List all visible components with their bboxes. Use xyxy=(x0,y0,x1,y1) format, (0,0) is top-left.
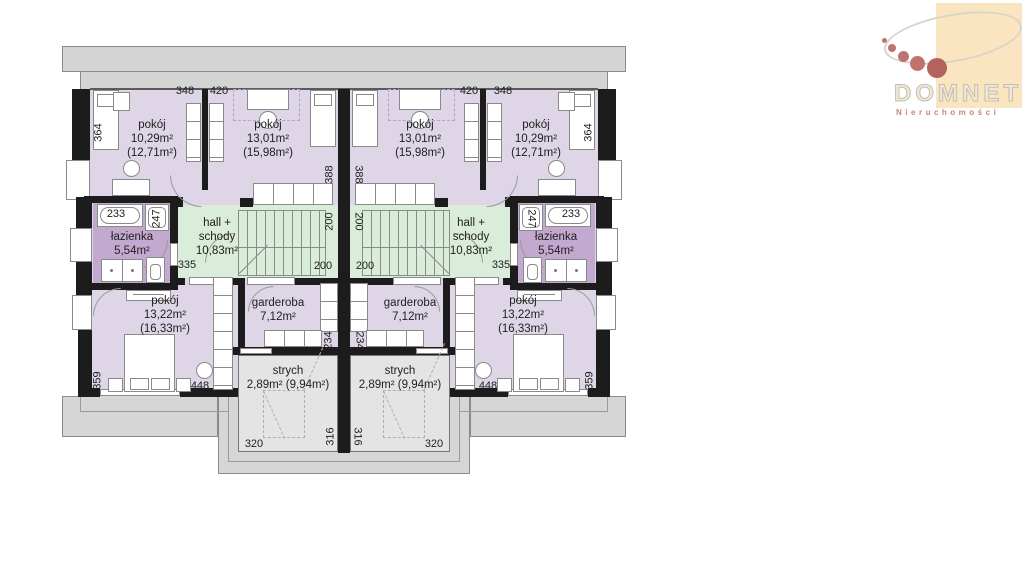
nightstand xyxy=(558,92,575,111)
toilet xyxy=(523,257,542,283)
party-wall xyxy=(338,89,350,453)
bed xyxy=(310,90,336,147)
dimension-label: 448 xyxy=(185,380,215,393)
dimension-label: 234 xyxy=(353,326,366,356)
wardrobe xyxy=(264,330,322,347)
wall-segment xyxy=(202,89,208,190)
attic-hatch xyxy=(383,390,425,438)
wall-segment xyxy=(435,198,448,207)
dimension-label: 364 xyxy=(93,118,106,148)
room-label-lazienka-right: łazienka 5,54m² xyxy=(523,230,589,258)
wall-segment xyxy=(175,278,185,285)
logo-dot xyxy=(888,44,896,52)
apron-inner-line xyxy=(460,411,608,412)
pillow xyxy=(573,94,591,107)
room-label-hall-right: hall + schody 10,83m² xyxy=(436,216,506,258)
apron-inner-line xyxy=(80,411,228,412)
floor-plan-page: pokój 10,29m² (12,71m²) pokój 13,01m² (1… xyxy=(0,0,1024,579)
nightstand xyxy=(108,378,123,392)
pillow xyxy=(314,94,332,106)
sink-double xyxy=(101,259,143,282)
desk xyxy=(538,179,576,196)
room-label-hall-left: hall + schody 10,83m² xyxy=(182,216,252,258)
dimension-label: 420 xyxy=(456,85,482,98)
door-opening xyxy=(393,277,441,285)
pillow xyxy=(519,378,538,390)
dimension-label: 200 xyxy=(352,207,365,237)
wall-segment xyxy=(596,262,612,295)
room-label-pokoj-medium-left: pokój 13,01m² (15,98m²) xyxy=(223,118,313,160)
wall-segment xyxy=(170,203,178,243)
dimension-label: 448 xyxy=(473,380,503,393)
wall-segment xyxy=(72,89,90,160)
toilet-seat xyxy=(150,264,161,280)
sink-drain xyxy=(131,269,134,272)
room-label-pokoj-small-left: pokój 10,29m² (12,71m²) xyxy=(107,118,197,160)
door-opening xyxy=(247,277,295,285)
window xyxy=(70,228,92,262)
wall-segment xyxy=(598,89,616,160)
chair xyxy=(475,362,492,379)
logo-dot xyxy=(882,38,887,43)
wall-segment xyxy=(240,198,253,207)
nightstand xyxy=(113,92,130,111)
room-label-garderoba-right: garderoba 7,12m² xyxy=(370,296,450,324)
dimension-label: 247 xyxy=(525,207,538,231)
window xyxy=(598,160,622,200)
brand-subtitle: Nieruchomości xyxy=(896,108,999,117)
dimension-label: 348 xyxy=(490,85,516,98)
dimension-label: 359 xyxy=(92,366,105,396)
wall-segment xyxy=(76,262,92,295)
pillow xyxy=(540,378,559,390)
apron-left xyxy=(62,396,218,437)
bed xyxy=(247,89,289,110)
logo-dot xyxy=(927,58,947,78)
wall-segment xyxy=(503,278,513,285)
sink-drain xyxy=(575,269,578,272)
sink-divider xyxy=(566,260,567,281)
sink-divider xyxy=(122,260,123,281)
dimension-label: 200 xyxy=(324,207,337,237)
brand-name: DOMNET xyxy=(894,80,1022,108)
wall-segment xyxy=(84,283,178,290)
wall-segment xyxy=(510,203,518,243)
pillow xyxy=(356,94,374,106)
wardrobe xyxy=(209,103,224,162)
shelf-row xyxy=(253,183,333,205)
window xyxy=(66,160,90,200)
wardrobe xyxy=(464,103,479,162)
door-opening xyxy=(416,348,448,354)
apron-inner-line xyxy=(80,396,81,411)
chair xyxy=(548,160,565,177)
dimension-label: 234 xyxy=(323,326,336,356)
sink-drain xyxy=(110,269,113,272)
bed-double xyxy=(513,334,564,392)
room-label-strych-left: strych 2,89m² (9,94m²) xyxy=(239,364,337,392)
sink-double xyxy=(545,259,587,282)
dimension-label: 388 xyxy=(324,160,337,190)
room-label-pokoj-large-left: pokój 13,22m² (16,33m²) xyxy=(125,294,205,336)
sink-drain xyxy=(554,269,557,272)
dimension-label: 233 xyxy=(556,208,586,221)
hatch-line xyxy=(383,391,405,439)
dimension-label: 359 xyxy=(584,366,597,396)
door-opening xyxy=(240,348,272,354)
dimension-label: 348 xyxy=(172,85,198,98)
dimension-label: 335 xyxy=(172,259,202,272)
room-label-pokoj-medium-right: pokój 13,01m² (15,98m²) xyxy=(375,118,465,160)
desk xyxy=(112,179,150,196)
logo-dot xyxy=(910,56,925,71)
dimension-label: 200 xyxy=(350,260,380,273)
roof-eave-outer xyxy=(62,46,626,72)
bed xyxy=(399,89,441,110)
hatch-line xyxy=(263,391,285,439)
chair xyxy=(123,160,140,177)
bed-double xyxy=(124,334,175,392)
window xyxy=(72,295,92,330)
wall-segment xyxy=(84,196,178,203)
room-label-strych-right: strych 2,89m² (9,94m²) xyxy=(351,364,449,392)
wardrobe xyxy=(366,330,424,347)
wall-segment xyxy=(510,196,604,203)
shelf-row xyxy=(355,183,435,205)
window xyxy=(596,228,618,262)
room-label-pokoj-small-right: pokój 10,29m² (12,71m²) xyxy=(491,118,581,160)
dimension-label: 388 xyxy=(352,160,365,190)
attic-hatch xyxy=(263,390,305,438)
wall-segment xyxy=(510,283,604,290)
apron-right xyxy=(470,396,626,437)
dimension-label: 364 xyxy=(583,118,596,148)
wall-segment xyxy=(596,330,610,397)
dimension-label: 420 xyxy=(206,85,232,98)
wardrobe xyxy=(455,277,475,390)
dimension-label: 233 xyxy=(101,208,131,221)
pillow xyxy=(151,378,170,390)
toilet-seat xyxy=(527,264,538,280)
apron-inner-line xyxy=(607,396,608,411)
dimension-label: 316 xyxy=(325,422,338,452)
dimension-label: 320 xyxy=(240,438,268,451)
room-label-lazienka-left: łazienka 5,54m² xyxy=(99,230,165,258)
dimension-label: 200 xyxy=(308,260,338,273)
nightstand xyxy=(565,378,580,392)
wall-segment xyxy=(78,330,92,397)
window xyxy=(596,295,616,330)
logo-dot xyxy=(898,51,909,62)
dimension-label: 320 xyxy=(420,438,448,451)
wardrobe xyxy=(213,277,233,390)
dimension-label: 247 xyxy=(151,207,164,231)
chair xyxy=(196,362,213,379)
dimension-label: 335 xyxy=(486,259,516,272)
toilet xyxy=(146,257,165,283)
pillow xyxy=(130,378,149,390)
dimension-label: 316 xyxy=(351,422,364,452)
room-label-pokoj-large-right: pokój 13,22m² (16,33m²) xyxy=(483,294,563,336)
room-label-garderoba-left: garderoba 7,12m² xyxy=(238,296,318,324)
